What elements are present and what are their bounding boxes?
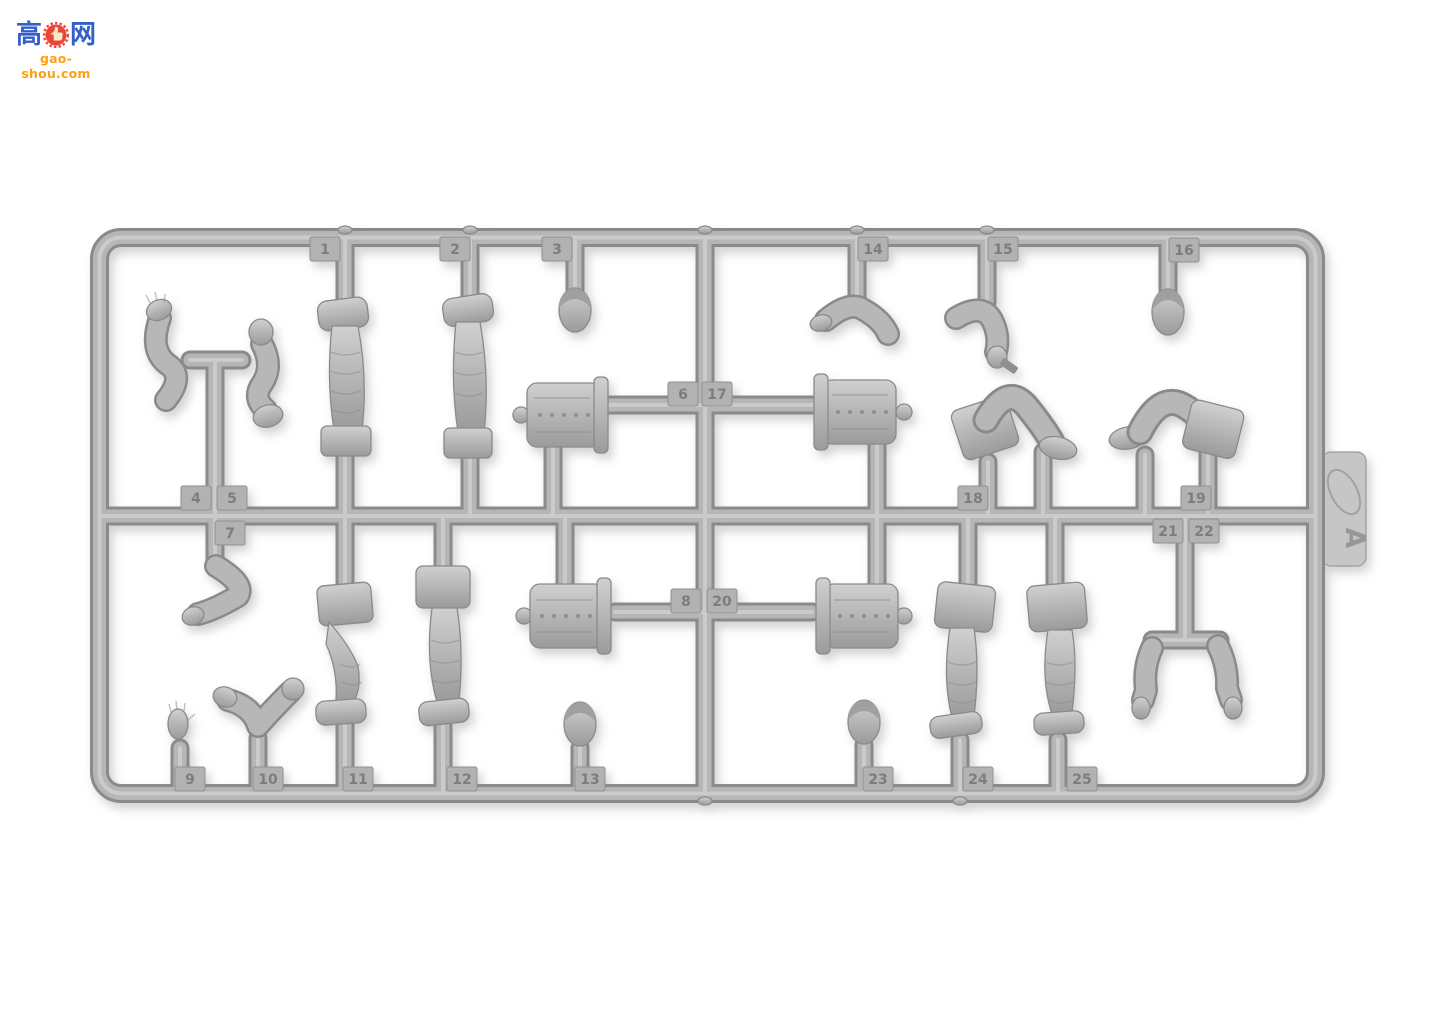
part-25-leg [1026,582,1088,736]
part-13-head [564,702,596,746]
part-16-head [1152,289,1184,335]
watermark-cn-right: 网 [70,22,96,48]
part-24-leg [929,581,997,739]
part-tag-11: 11 [348,772,367,788]
part-tag-15: 15 [993,242,1012,258]
part-21-arm [1132,648,1152,719]
part-6-torso [513,377,608,453]
part-10-arm [210,678,304,726]
part-tag-17: 17 [707,387,726,403]
part-14-arm [808,307,888,334]
part-tag-18: 18 [963,491,982,507]
part-tag-20: 20 [712,594,732,610]
part-tag-22: 22 [1194,524,1213,540]
sprue: A [100,226,1371,805]
part-5-arm [249,319,285,431]
part-19-legs [1107,398,1245,460]
part-15-arm [956,310,1019,374]
part-tag-19: 19 [1186,491,1205,507]
part-tag-2: 2 [450,242,460,258]
sprue-product-photo: A [0,0,1440,1029]
sprue-letter-tag: A [1321,452,1370,566]
part-tag-16: 16 [1174,243,1193,259]
part-tag-3: 3 [552,242,562,258]
part-tag-7: 7 [225,526,235,542]
part-9-hand [168,701,195,739]
watermark-logo-row: 高 网 [8,22,104,48]
watermark-cn-left: 高 [16,22,42,48]
part-tag-8: 8 [681,594,691,610]
part-2-leg [441,292,495,458]
part-tag-9: 9 [185,772,195,788]
sprue-letter: A [1339,528,1370,549]
part-tag-5: 5 [227,491,237,507]
part-3-head [559,288,591,332]
part-18-legs [949,394,1078,462]
thumbs-up-gear-icon [43,22,69,48]
part-tag-14: 14 [863,242,883,258]
part-12-leg [416,566,470,727]
pistol-in-hand [999,358,1018,375]
part-7-arm [180,566,240,628]
part-4-arm [143,292,176,400]
part-tag-25: 25 [1072,772,1091,788]
part-17-torso [814,374,912,450]
part-tag-13: 13 [580,772,599,788]
part-tag-23: 23 [868,772,887,788]
part-23-head [848,700,880,744]
part-tag-10: 10 [258,772,278,788]
part-1-leg [316,296,371,456]
watermark: 高 网 gao-shou.com [8,22,104,81]
part-tag-21: 21 [1158,524,1177,540]
watermark-site: gao-shou.com [8,51,104,81]
part-22-arm [1218,646,1242,719]
part-tag-12: 12 [452,772,471,788]
part-11-leg [315,582,373,726]
part-tag-4: 4 [191,491,201,507]
part-tag-6: 6 [678,387,688,403]
part-tag-1: 1 [320,242,330,258]
part-20-torso [816,578,912,654]
part-tag-24: 24 [968,772,988,788]
sprue-photo-svg: A [0,0,1440,1029]
part-8-torso [516,578,611,654]
